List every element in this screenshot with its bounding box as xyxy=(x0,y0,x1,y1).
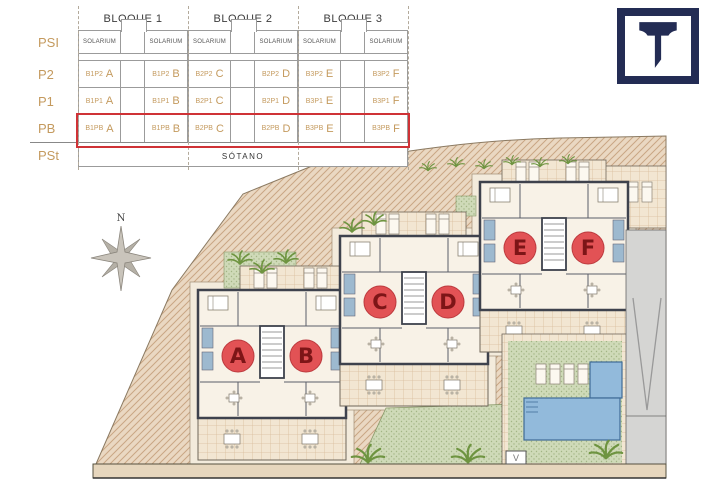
unit-cell[interactable]: B3PBF xyxy=(365,115,407,142)
building-block-2 xyxy=(340,212,488,406)
pool-area xyxy=(502,334,628,468)
row-label-p1: P1 xyxy=(38,88,78,115)
unit-cell[interactable]: B3P1F xyxy=(365,88,407,115)
bloque-1: BLOQUE 1 SOLARIUM SOLARIUM B1P2A B1P2B B… xyxy=(78,8,188,143)
svg-text:A: A xyxy=(230,344,247,368)
unit-cell[interactable]: B3P2E xyxy=(299,61,341,88)
unit-cell[interactable]: B2P1D xyxy=(255,88,297,115)
unit-cell[interactable]: B2P1C xyxy=(189,88,231,115)
unit-cell[interactable]: B3P2F xyxy=(365,61,407,88)
middle-lawn xyxy=(360,404,520,464)
svg-text:C: C xyxy=(372,290,387,314)
unit-cell[interactable]: B1P2A xyxy=(79,61,121,88)
svg-text:E: E xyxy=(513,236,527,260)
svg-text:F: F xyxy=(581,236,595,260)
building-block-1 xyxy=(198,266,346,460)
elevator-shaft xyxy=(231,19,257,32)
apartment-marker-b[interactable]: B xyxy=(290,340,322,372)
unit-cell[interactable]: B2PBC xyxy=(189,115,231,142)
floor-table: PSI P2 P1 PB PSt BLOQUE 1 SOLARIUM SOLAR… xyxy=(38,8,408,167)
north-label: N xyxy=(117,213,126,224)
main-pool xyxy=(524,398,620,440)
apartment-marker-d[interactable]: D xyxy=(432,286,464,318)
unit-cell[interactable]: B1PBB xyxy=(145,115,187,142)
svg-text:V: V xyxy=(513,453,519,463)
unit-cell[interactable]: B1P1B xyxy=(145,88,187,115)
solarium-cell: SOLARIUM xyxy=(79,31,121,54)
apartment-marker-a[interactable]: A xyxy=(222,340,254,372)
road-strip xyxy=(93,464,666,478)
elevator-shaft xyxy=(341,19,367,32)
driveway-ramp xyxy=(626,230,666,478)
sotano-row: SÓTANO xyxy=(78,146,408,167)
building-block-3 xyxy=(480,160,628,352)
row-label-pst: PSt xyxy=(38,145,78,166)
solarium-cell: SOLARIUM xyxy=(255,31,297,54)
unit-cell[interactable]: B2P2D xyxy=(255,61,297,88)
unit-cell[interactable]: B2PBD xyxy=(255,115,297,142)
svg-text:D: D xyxy=(439,290,456,314)
unit-cell[interactable]: B1P1A xyxy=(79,88,121,115)
solarium-cell: SOLARIUM xyxy=(365,31,407,54)
apartment-marker-f[interactable]: F xyxy=(572,232,604,264)
floor-row-labels: PSI P2 P1 PB PSt xyxy=(38,8,78,167)
svg-text:B: B xyxy=(298,344,314,368)
solarium-cell: SOLARIUM xyxy=(145,31,187,54)
row-label-p2: P2 xyxy=(38,61,78,88)
elevator-shaft xyxy=(121,19,147,32)
unit-cell[interactable]: B3P1E xyxy=(299,88,341,115)
unit-cell[interactable]: B1P2B xyxy=(145,61,187,88)
row-label-pb: PB xyxy=(38,115,78,142)
unit-cell[interactable]: B3PBE xyxy=(299,115,341,142)
brand-logo xyxy=(617,8,699,84)
small-pool xyxy=(590,362,622,398)
solarium-cell: SOLARIUM xyxy=(189,31,231,54)
ground-line xyxy=(30,142,410,143)
bloque-3: BLOQUE 3 SOLARIUM SOLARIUM B3P2E B3P2F B… xyxy=(298,8,408,143)
gate-marker: V xyxy=(506,451,526,464)
row-label-psi: PSI xyxy=(38,30,78,54)
apartment-marker-c[interactable]: C xyxy=(364,286,396,318)
apartment-marker-e[interactable]: E xyxy=(504,232,536,264)
solarium-cell: SOLARIUM xyxy=(299,31,341,54)
unit-cell[interactable]: B1PBA xyxy=(79,115,121,142)
logo-t-icon xyxy=(636,20,680,72)
bloque-2: BLOQUE 2 SOLARIUM SOLARIUM B2P2C B2P2D B… xyxy=(188,8,298,143)
north-compass: N xyxy=(91,213,151,291)
unit-cell[interactable]: B2P2C xyxy=(189,61,231,88)
